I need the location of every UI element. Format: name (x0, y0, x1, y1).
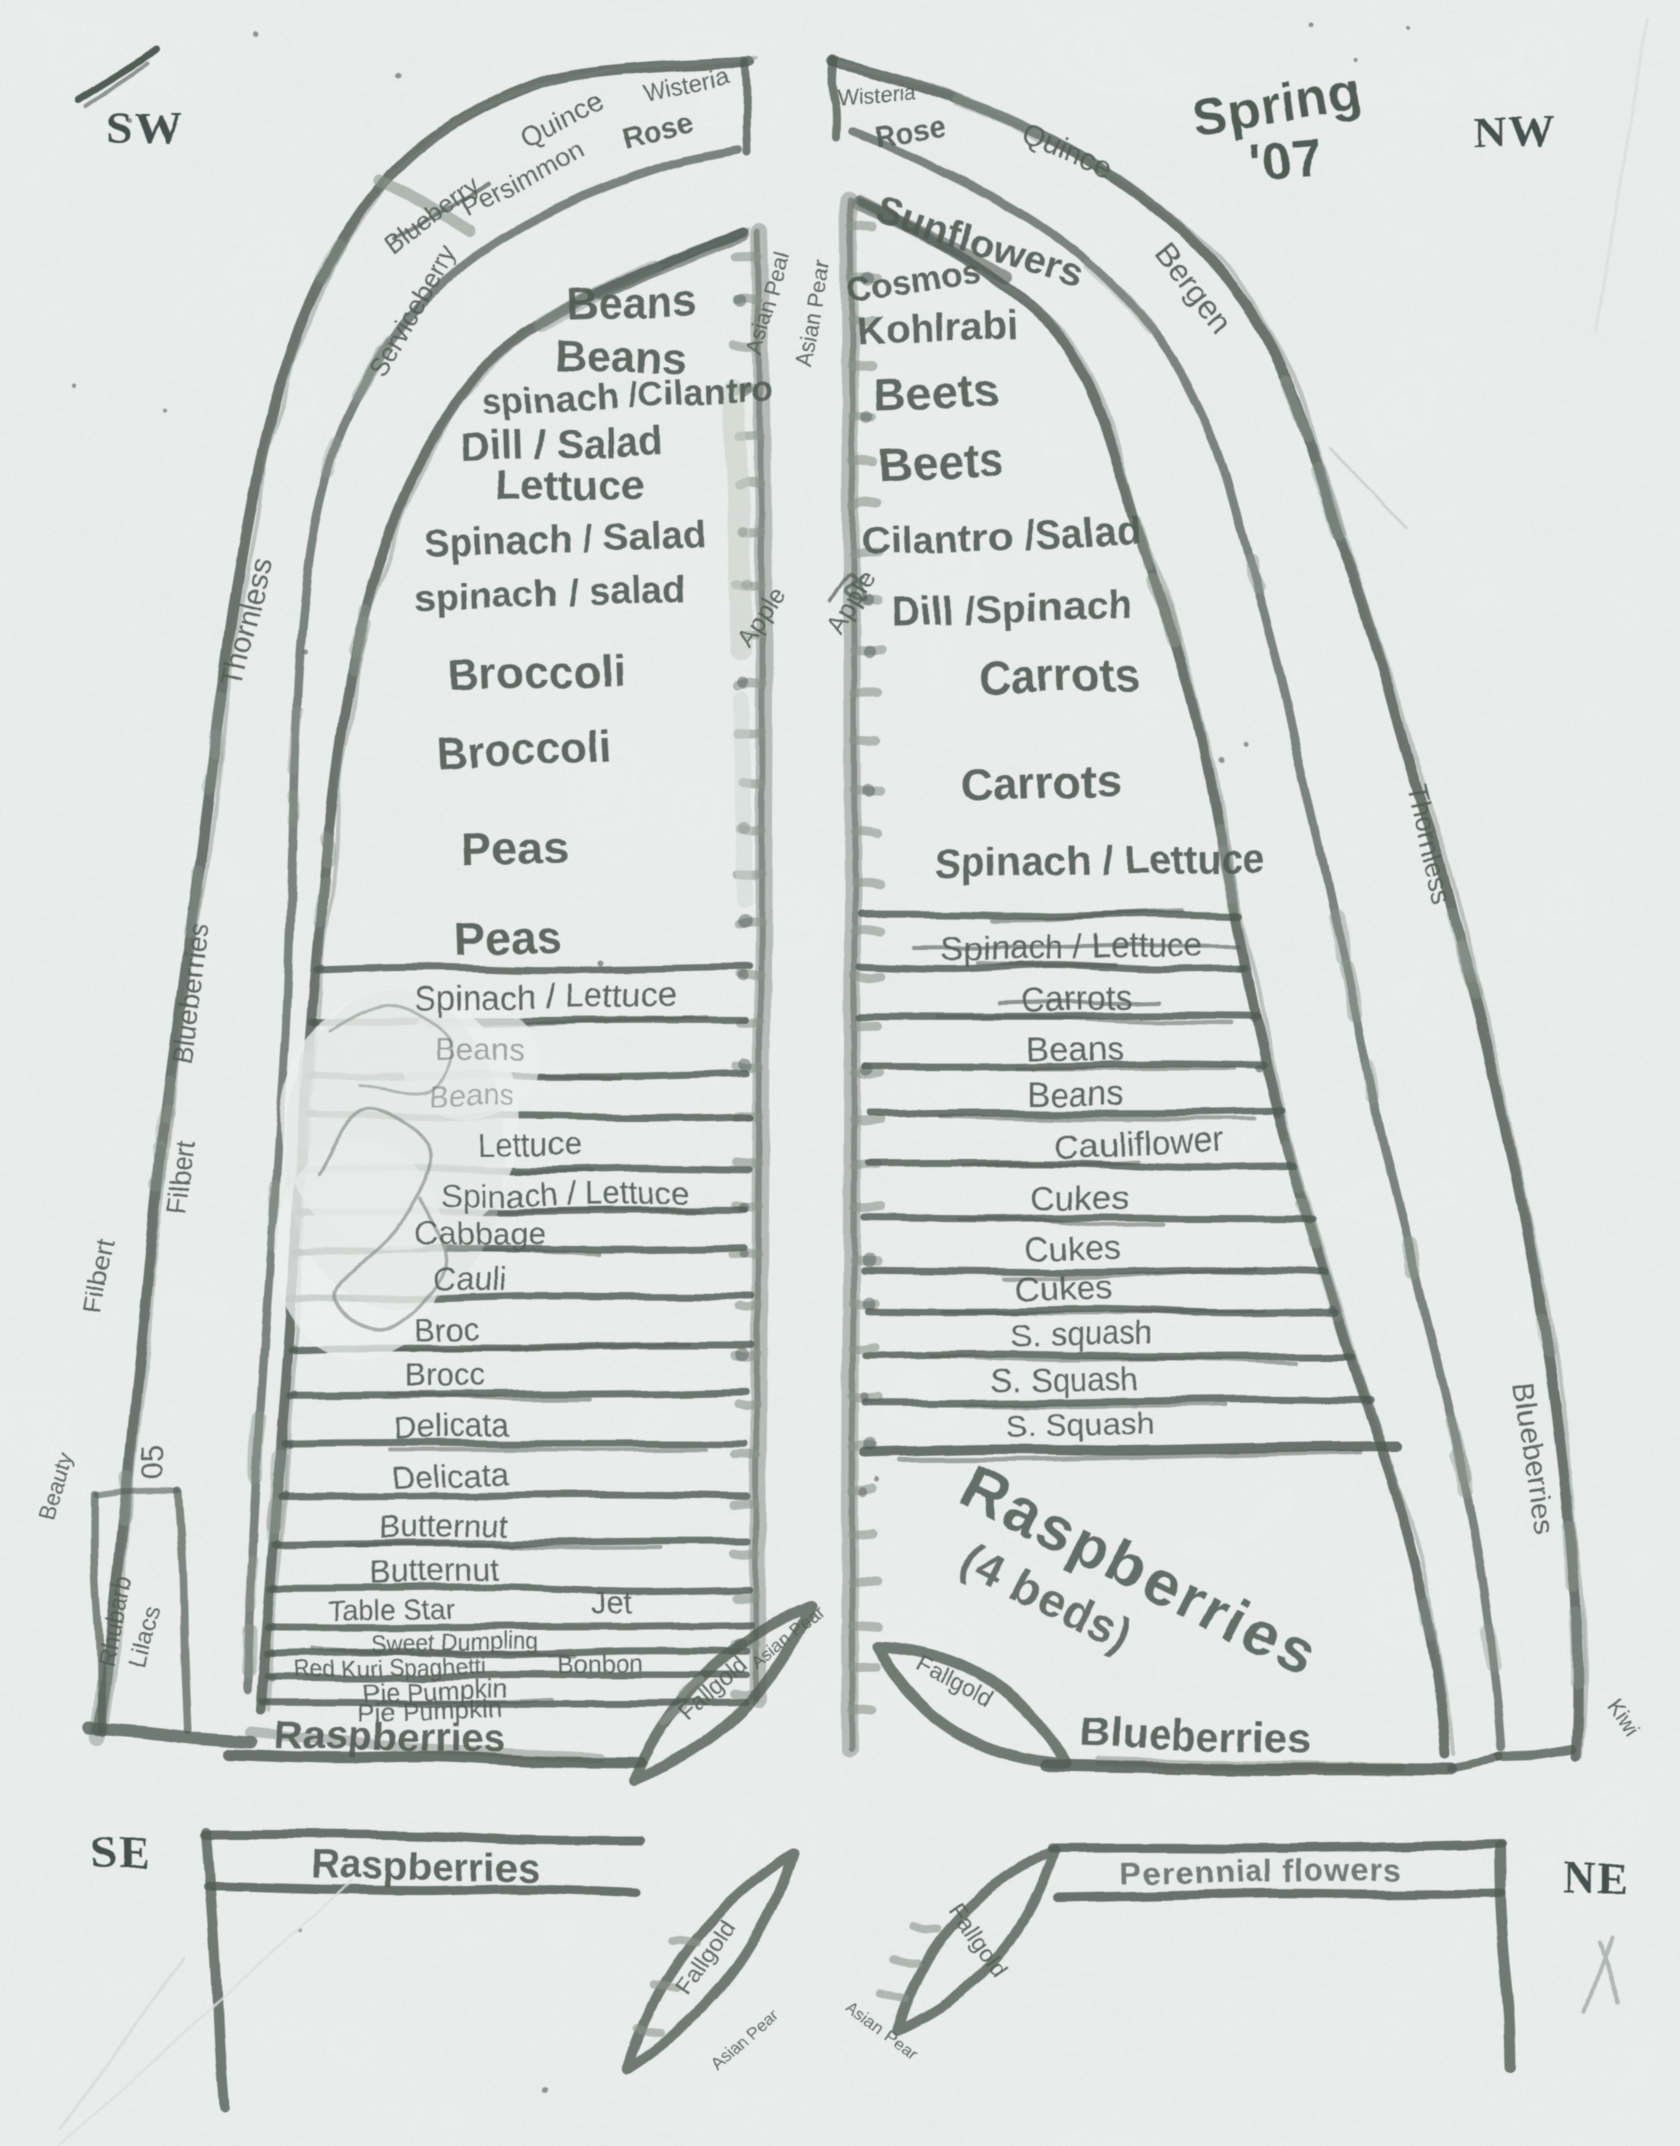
svg-text:Raspberries: Raspberries (274, 1713, 506, 1761)
svg-text:S. squash: S. squash (1010, 1315, 1153, 1353)
svg-text:Beans: Beans (1027, 1030, 1123, 1068)
svg-text:Cauliflower: Cauliflower (1055, 1122, 1224, 1166)
svg-text:Peas: Peas (460, 820, 569, 876)
svg-text:Perennial flowers: Perennial flowers (1121, 1851, 1404, 1892)
svg-text:Broccoli: Broccoli (448, 646, 626, 701)
svg-text:Cukes: Cukes (1015, 1269, 1112, 1309)
svg-text:NE: NE (1563, 1852, 1631, 1903)
svg-text:S. Squash: S. Squash (1006, 1405, 1154, 1444)
svg-text:Carrots: Carrots (959, 753, 1124, 811)
svg-text:Delicata: Delicata (393, 1406, 510, 1446)
svg-text:Beans: Beans (1027, 1075, 1123, 1113)
svg-text:Carrots: Carrots (977, 647, 1142, 705)
svg-text:'07: '07 (1248, 129, 1326, 193)
svg-text:Peas: Peas (453, 910, 562, 966)
svg-text:SE: SE (91, 1827, 151, 1878)
svg-text:Lettuce: Lettuce (478, 1127, 583, 1163)
svg-text:NW: NW (1473, 107, 1556, 158)
svg-text:Brocc: Brocc (404, 1357, 486, 1393)
svg-text:Jet: Jet (590, 1585, 633, 1622)
svg-text:Spinach / Lettuce: Spinach / Lettuce (934, 837, 1266, 887)
svg-text:Lettuce: Lettuce (495, 461, 645, 511)
svg-text:Table Star: Table Star (329, 1594, 456, 1627)
svg-text:Kohlrabi: Kohlrabi (855, 304, 1019, 354)
svg-text:Spinach / Lettuce: Spinach / Lettuce (441, 1174, 689, 1214)
svg-text:Cauli: Cauli (434, 1261, 507, 1297)
svg-text:Beans: Beans (435, 1031, 526, 1067)
svg-text:Raspberries: Raspberries (309, 1843, 541, 1891)
svg-text:Butternut: Butternut (369, 1551, 500, 1592)
svg-text:Bonbon: Bonbon (557, 1649, 644, 1679)
svg-text:Beans: Beans (566, 277, 700, 331)
svg-text:Cukes: Cukes (1031, 1179, 1128, 1219)
svg-text:Broccoli: Broccoli (435, 720, 613, 778)
svg-text:Cabbage: Cabbage (415, 1216, 545, 1252)
svg-text:Delicata: Delicata (391, 1456, 508, 1496)
svg-text:Carrots: Carrots (1020, 978, 1133, 1020)
svg-text:S. Squash: S. Squash (991, 1360, 1139, 1399)
svg-text:Cukes: Cukes (1024, 1229, 1121, 1269)
svg-text:Blueberries: Blueberries (1079, 1708, 1312, 1763)
svg-text:Butternut: Butternut (378, 1507, 509, 1545)
svg-text:05: 05 (137, 1445, 170, 1478)
svg-text:Broc: Broc (415, 1310, 481, 1347)
svg-text:Beans: Beans (429, 1080, 514, 1113)
svg-text:SW: SW (107, 102, 183, 153)
svg-text:Spinach / Lettuce: Spinach / Lettuce (413, 976, 676, 1019)
svg-text:Beets: Beets (873, 364, 1000, 420)
svg-text:Beets: Beets (877, 433, 1005, 491)
svg-text:Dill /Spinach: Dill /Spinach (891, 583, 1132, 635)
